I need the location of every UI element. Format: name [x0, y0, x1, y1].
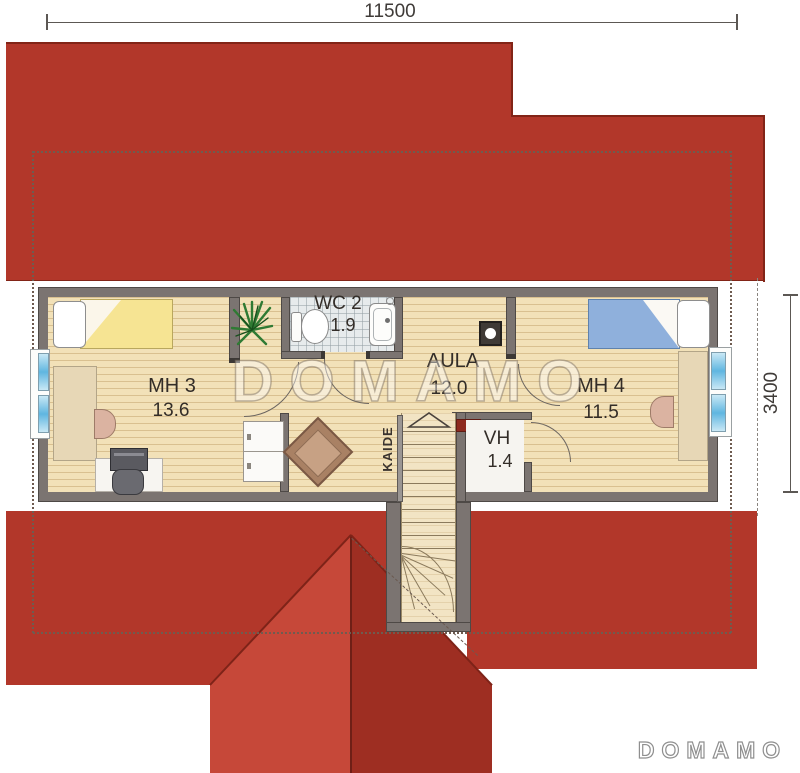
- stair-tread: [402, 522, 455, 523]
- roof-edge: [6, 42, 512, 44]
- cabinet-knob: [247, 434, 251, 440]
- right-dimension-tick-top: [783, 294, 798, 296]
- printer: [110, 448, 148, 471]
- room-area-vh: 1.4: [470, 451, 530, 472]
- desk-mh3: [53, 366, 97, 461]
- right-dimension-label: 3400: [742, 363, 800, 423]
- desk-mh4: [678, 351, 708, 461]
- roof-edge: [511, 115, 765, 117]
- room-area-wc2: 1.9: [293, 315, 393, 336]
- office-chair: [112, 469, 144, 495]
- eaves-outline-top: [33, 151, 731, 153]
- stair-tread: [403, 431, 455, 432]
- stairwell-wall-right: [456, 502, 471, 632]
- bed-yellow-mattress: [53, 301, 86, 348]
- armchair-seat: [294, 429, 342, 477]
- top-dimension-label: 11500: [330, 1, 450, 23]
- stair-tread: [403, 483, 455, 484]
- stair-tread: [402, 509, 455, 510]
- window-west-pane: [38, 395, 49, 433]
- roof-edge: [511, 42, 513, 116]
- right-dimension-tick-bottom: [783, 491, 798, 493]
- roof-edge: [6, 280, 765, 281]
- cabinet-knob: [247, 463, 251, 469]
- flue: [479, 321, 502, 346]
- window-west-pane: [38, 353, 49, 391]
- stairwell-wall-bottom: [386, 622, 471, 632]
- top-dimension-tick-left: [46, 14, 48, 30]
- chair-mh4: [650, 396, 674, 428]
- watermark-center: DOMAMO: [195, 348, 635, 415]
- window-east-pane: [711, 394, 726, 432]
- top-dimension-tick-right: [736, 14, 738, 30]
- room-label-wc2: WC 2: [288, 293, 388, 315]
- watermark-logo: DOMAMO: [630, 737, 795, 764]
- cabinet-divider: [244, 451, 283, 452]
- stair-tread: [403, 444, 455, 445]
- roof-bottom-right: [467, 511, 757, 669]
- stair-tread: [403, 496, 455, 497]
- stair-railing-label: KAIDE: [367, 429, 407, 469]
- stair-tread: [403, 470, 455, 471]
- floor-plan: 11500 3400: [0, 0, 800, 773]
- eaves-outline-bottom: [33, 632, 731, 634]
- flue-pipe: [485, 328, 496, 339]
- room-label-vh: VH: [467, 428, 527, 450]
- window-east-pane: [711, 352, 726, 390]
- roof-ridge-line: [350, 535, 352, 773]
- stairwell-wall-left: [386, 502, 401, 632]
- stair-tread: [402, 535, 455, 536]
- roof-edge: [763, 115, 765, 282]
- bed-blue-mattress: [677, 300, 710, 348]
- stair-tread: [403, 457, 455, 458]
- plant: [226, 296, 278, 354]
- printer-detail: [114, 453, 144, 456]
